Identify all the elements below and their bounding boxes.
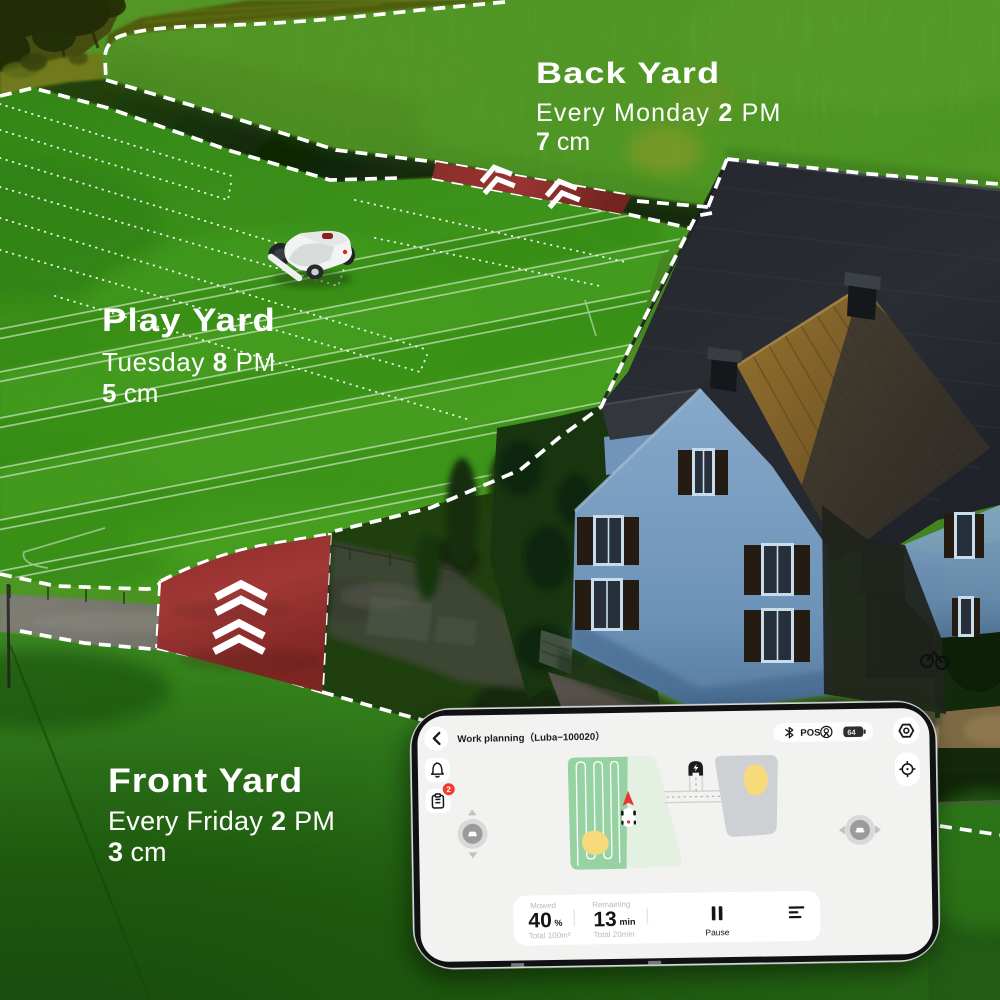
svg-text:2: 2 — [446, 785, 451, 794]
svg-text:Pause: Pause — [705, 927, 730, 937]
svg-text:Total 100m²: Total 100m² — [529, 931, 571, 941]
svg-text:%: % — [554, 918, 562, 928]
svg-text:64: 64 — [847, 728, 856, 737]
svg-text:13: 13 — [593, 908, 617, 931]
svg-text:Total 20min: Total 20min — [594, 930, 635, 940]
svg-text:min: min — [619, 917, 635, 927]
svg-text:POS: POS — [800, 728, 820, 739]
svg-text:40: 40 — [528, 909, 552, 932]
